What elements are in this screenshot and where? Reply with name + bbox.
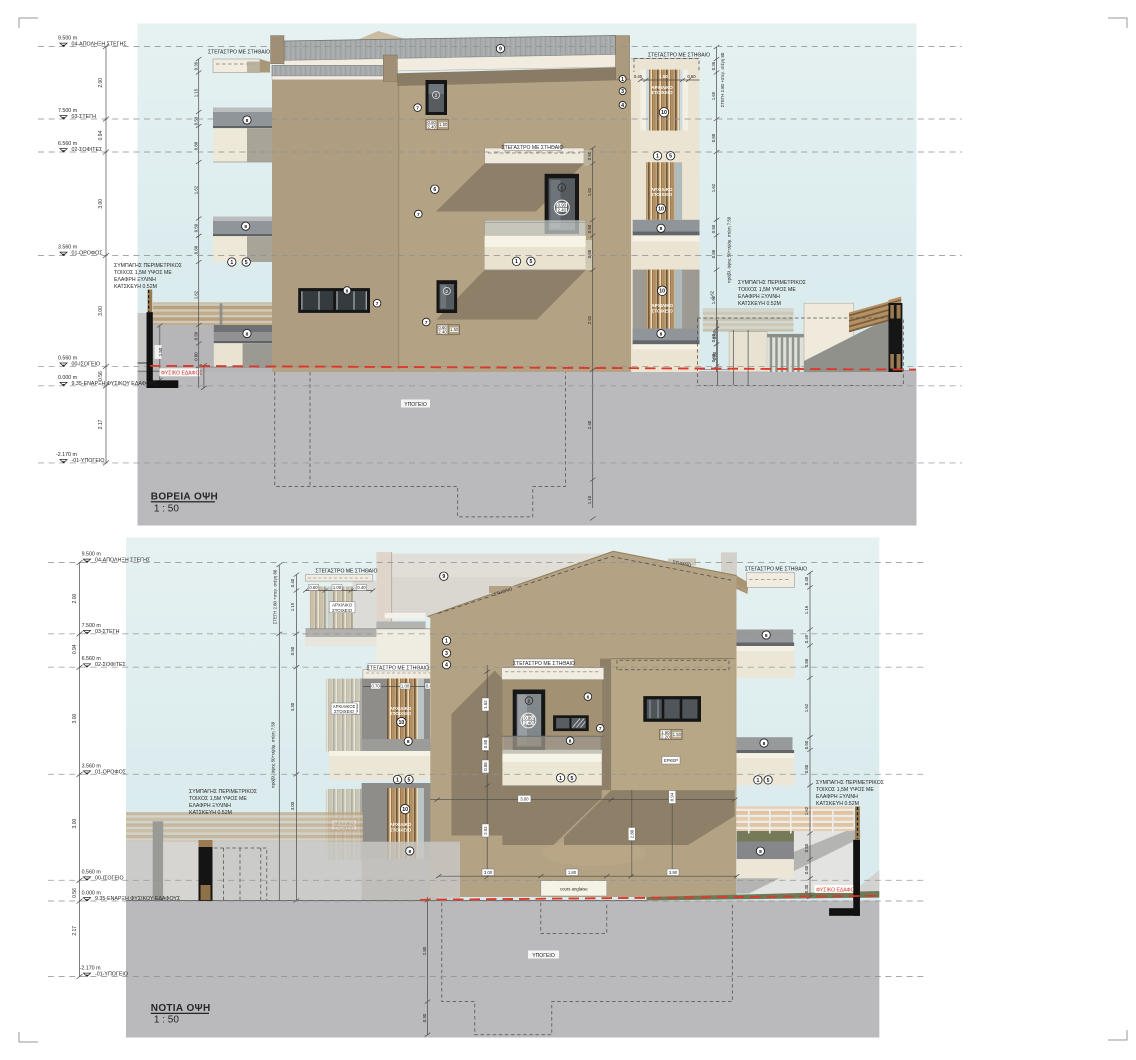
svg-text:1.19: 1.19: [290, 602, 295, 611]
svg-text:1 : 50: 1 : 50: [154, 1015, 179, 1026]
svg-text:01-ΟΡΟΦΟΣ: 01-ΟΡΟΦΟΣ: [95, 769, 127, 775]
svg-text:1: 1: [756, 778, 759, 784]
svg-text:3.00: 3.00: [72, 819, 78, 829]
svg-text:ΣΤΟΙΧΕΙΟ: ΣΤΟΙΧΕΙΟ: [652, 308, 674, 313]
svg-text:ΣΤΕΓΑΣΤΡΟ ΜΕ ΣΤΗΘΑΙΟ: ΣΤΕΓΑΣΤΡΟ ΜΕ ΣΤΗΘΑΙΟ: [501, 145, 563, 151]
svg-text:7: 7: [417, 212, 420, 218]
svg-text:-01-ΥΠΟΓΕΙΟ: -01-ΥΠΟΓΕΙΟ: [95, 972, 128, 978]
svg-text:5: 5: [669, 154, 672, 160]
svg-text:01-ΟΡΟΦΟΣ: 01-ΟΡΟΦΟΣ: [72, 251, 104, 257]
svg-text:ΤΟΙΧΟΣ 1,5Μ ΥΨΟΣ ΜΕ: ΤΟΙΧΟΣ 1,5Μ ΥΨΟΣ ΜΕ: [189, 796, 247, 802]
svg-text:1.50: 1.50: [439, 122, 448, 127]
svg-text:3.00: 3.00: [98, 199, 104, 209]
svg-text:ΝΟΤΙΑ ΟΨΗ: ΝΟΤΙΑ ΟΨΗ: [151, 1003, 211, 1014]
svg-text:0.88: 0.88: [804, 764, 809, 773]
svg-text:0.40: 0.40: [634, 74, 643, 79]
svg-text:3: 3: [621, 89, 624, 95]
svg-text:ΣΤΕΓΑΣΤΡΟ ΜΕ ΣΤΗΘΑΙΟ: ΣΤΕΓΑΣΤΡΟ ΜΕ ΣΤΗΘΑΙΟ: [513, 661, 575, 667]
svg-text:8: 8: [346, 288, 349, 294]
svg-text:1.50: 1.50: [659, 74, 668, 79]
svg-text:0.40: 0.40: [290, 578, 295, 587]
svg-text:3.00: 3.00: [484, 870, 493, 875]
svg-text:1.62: 1.62: [804, 703, 809, 712]
svg-text:6: 6: [587, 694, 590, 700]
svg-text:ΚΑΤΣΚΕΥΗ 0.52Μ: ΚΑΤΣΚΕΥΗ 0.52Μ: [114, 284, 157, 290]
svg-text:0.88: 0.88: [587, 249, 592, 258]
svg-text:2.80: 2.80: [422, 946, 427, 955]
svg-text:8: 8: [407, 739, 410, 745]
svg-text:0.88: 0.88: [711, 133, 716, 142]
svg-text:9.35-ΕΝΑΡΞΗ ΦΥΣΙΚΟΥ ΕΔΑΦΟΥΣ: 9.35-ΕΝΑΡΞΗ ΦΥΣΙΚΟΥ ΕΔΑΦΟΥΣ: [95, 896, 181, 902]
svg-text:0.60: 0.60: [804, 865, 809, 874]
svg-text:5: 5: [767, 778, 770, 784]
svg-text:1.16: 1.16: [804, 605, 809, 614]
svg-text:00-ΙΣΟΓΕΙΟ: 00-ΙΣΟΓΕΙΟ: [95, 875, 124, 881]
svg-text:ΑΡΧΙΛΙΚΟ: ΑΡΧΙΛΙΚΟ: [651, 187, 673, 192]
svg-text:1: 1: [230, 260, 233, 266]
svg-text:πρόβλ. όψης 50+υψόμ. στέγη 7.5: πρόβλ. όψης 50+υψόμ. στέγη 7.50: [271, 721, 276, 788]
svg-text:ΤΟΙΧΟΣ 1,5Μ ΥΨΟΣ ΜΕ: ΤΟΙΧΟΣ 1,5Μ ΥΨΟΣ ΜΕ: [816, 787, 874, 793]
svg-text:3.00: 3.00: [520, 797, 529, 802]
svg-text:ΤΟΙΧΟΣ 1,5Μ ΥΨΟΣ ΜΕ: ΤΟΙΧΟΣ 1,5Μ ΥΨΟΣ ΜΕ: [738, 287, 796, 293]
svg-text:1.15: 1.15: [194, 88, 199, 97]
svg-text:4: 4: [445, 663, 448, 669]
svg-text:1.62: 1.62: [711, 295, 716, 304]
svg-text:ΒΟΡΕΙΑ ΟΨΗ: ΒΟΡΕΙΑ ΟΨΗ: [151, 492, 218, 503]
svg-text:1: 1: [445, 639, 448, 645]
svg-text:1.62: 1.62: [711, 183, 716, 192]
svg-text:1.62: 1.62: [194, 185, 199, 194]
svg-text:ΣΥΜΠΑΓΗΣ ΠΕΡΙΜΕΤΡΙΚΟΣ: ΣΥΜΠΑΓΗΣ ΠΕΡΙΜΕΤΡΙΚΟΣ: [738, 280, 806, 286]
svg-text:2.40: 2.40: [438, 330, 447, 335]
svg-text:0.40: 0.40: [357, 585, 366, 590]
svg-text:2.17: 2.17: [98, 419, 104, 429]
svg-text:ΣΤΕΓΗ 2.80 +στεγ. στέγη 80: ΣΤΕΓΗ 2.80 +στεγ. στέγη 80: [273, 569, 278, 624]
svg-text:ΥΠΟΓΕΙΟ: ΥΠΟΓΕΙΟ: [404, 402, 427, 408]
svg-text:10: 10: [399, 720, 405, 726]
svg-text:1.50: 1.50: [158, 347, 163, 356]
svg-text:1 : 50: 1 : 50: [154, 504, 179, 515]
svg-text:0.50: 0.50: [587, 224, 592, 233]
svg-text:ΣΤΟΙΧΕΙΟ: ΣΤΟΙΧΕΙΟ: [334, 709, 355, 714]
svg-text:3.30: 3.30: [290, 702, 295, 711]
svg-text:1.62: 1.62: [804, 806, 809, 815]
svg-text:ΑΡΧΙΛΙΚΟ: ΑΡΧΙΛΙΚΟ: [651, 85, 673, 90]
svg-text:ΣΤΕΓΑΣΤΡΟ ΜΕ ΣΤΗΘΑΙΟ: ΣΤΕΓΑΣΤΡΟ ΜΕ ΣΤΗΘΑΙΟ: [648, 53, 710, 59]
svg-text:ΣΤΟΙΧΕΙΟ: ΣΤΟΙΧΕΙΟ: [651, 90, 673, 95]
svg-text:1.00: 1.00: [333, 585, 342, 590]
svg-text:1.00: 1.00: [401, 684, 410, 689]
svg-text:ΣΤΕΓΑΣΤΡΟ ΜΕ ΣΤΗΘΑΙΟ: ΣΤΕΓΑΣΤΡΟ ΜΕ ΣΤΗΘΑΙΟ: [208, 50, 270, 56]
svg-text:0.50: 0.50: [587, 151, 592, 160]
svg-text:1.80: 1.80: [568, 870, 577, 875]
svg-text:5: 5: [408, 777, 411, 783]
svg-text:ΑΡΧΙΛΙΚΟ: ΑΡΧΙΛΙΚΟ: [390, 822, 412, 827]
svg-text:0.56: 0.56: [72, 888, 78, 898]
svg-text:5: 5: [571, 776, 574, 782]
svg-text:1: 1: [621, 77, 624, 83]
svg-text:0.36: 0.36: [194, 61, 199, 70]
svg-text:6: 6: [433, 187, 436, 193]
svg-text:10: 10: [402, 807, 408, 813]
svg-text:1.50: 1.50: [450, 327, 459, 332]
svg-text:0.88: 0.88: [711, 249, 716, 258]
svg-text:0.88: 0.88: [483, 762, 488, 771]
svg-text:2.40: 2.40: [558, 208, 567, 213]
svg-text:0.94: 0.94: [98, 130, 104, 140]
svg-text:4: 4: [621, 103, 624, 109]
svg-text:1.62: 1.62: [194, 290, 199, 299]
svg-text:ΣΤΕΓΗ 2.80 +στεγ. στέγη 80: ΣΤΕΓΗ 2.80 +στεγ. στέγη 80: [720, 52, 725, 107]
svg-text:3: 3: [445, 651, 448, 657]
svg-text:10: 10: [659, 289, 665, 295]
svg-text:ΣΤΕΓΑΣΤΡΟ ΜΕ ΣΤΗΘΑΙΟ: ΣΤΕΓΑΣΤΡΟ ΜΕ ΣΤΗΘΑΙΟ: [315, 569, 377, 575]
svg-text:1: 1: [656, 154, 659, 160]
svg-text:1.62: 1.62: [483, 700, 488, 709]
svg-text:0.50: 0.50: [194, 331, 199, 340]
svg-text:03-ΣΤΕΓΗ: 03-ΣΤΕΓΗ: [72, 114, 97, 120]
svg-text:8: 8: [246, 331, 249, 337]
svg-text:0.88: 0.88: [194, 141, 199, 150]
svg-text:2.00: 2.00: [98, 78, 104, 88]
svg-text:0.60: 0.60: [687, 74, 696, 79]
svg-text:0.88: 0.88: [194, 245, 199, 254]
svg-text:ΚΑΤΣΚΕΥΗ 0.52Μ: ΚΑΤΣΚΕΥΗ 0.52Μ: [816, 801, 859, 807]
svg-text:02-ΣΟΦΙΤΕΣ: 02-ΣΟΦΙΤΕΣ: [72, 147, 104, 153]
svg-text:2.17: 2.17: [72, 926, 78, 936]
svg-text:04-ΑΠΟΛΗΞΗ ΣΤΕΓΗΣ: 04-ΑΠΟΛΗΞΗ ΣΤΕΓΗΣ: [72, 41, 128, 47]
svg-text:0.50: 0.50: [483, 739, 488, 748]
svg-text:1: 1: [515, 259, 518, 265]
svg-text:0.49: 0.49: [804, 634, 809, 643]
svg-text:2.40: 2.40: [524, 721, 533, 726]
svg-text:0.30: 0.30: [804, 884, 809, 893]
svg-text:8: 8: [765, 633, 768, 639]
svg-text:8: 8: [244, 224, 247, 230]
svg-text:2: 2: [445, 289, 448, 295]
svg-text:ΦΥΣΙΚΟ ΕΔΑΦΟΣ: ΦΥΣΙΚΟ ΕΔΑΦΟΣ: [161, 371, 203, 377]
svg-text:0.50: 0.50: [804, 843, 809, 852]
svg-text:0.50: 0.50: [194, 116, 199, 125]
svg-text:0.40: 0.40: [804, 576, 809, 585]
svg-text:0.50: 0.50: [804, 740, 809, 749]
svg-text:0.80: 0.80: [194, 352, 199, 361]
svg-text:3.00: 3.00: [72, 714, 78, 724]
svg-text:9: 9: [499, 47, 502, 53]
svg-text:0.56: 0.56: [98, 371, 104, 381]
svg-text:cours anglaise: cours anglaise: [560, 887, 588, 892]
svg-text:ΚΑΤΣΚΕΥΗ 0.52Μ: ΚΑΤΣΚΕΥΗ 0.52Μ: [189, 810, 232, 816]
svg-text:ΕΛΑΦΡΗ ΞΥΛΙΝΗ: ΕΛΑΦΡΗ ΞΥΛΙΝΗ: [114, 277, 156, 283]
svg-text:8: 8: [408, 849, 411, 855]
svg-text:ΚΑΤΣΚΕΥΗ 0.52Μ: ΚΑΤΣΚΕΥΗ 0.52Μ: [738, 301, 781, 307]
svg-text:0.36: 0.36: [711, 61, 716, 70]
svg-text:ΣΤΕΓΑΣΤΡΟ ΜΕ ΣΤΗΘΑΙΟ: ΣΤΕΓΑΣΤΡΟ ΜΕ ΣΤΗΘΑΙΟ: [745, 566, 807, 572]
svg-text:ΥΠΟΓΕΙΟ: ΥΠΟΓΕΙΟ: [532, 953, 555, 959]
svg-text:9.35-ΕΝΑΡΞΗ ΦΥΣΙΚΟΥ ΕΔΑΦΟΥΣ: 9.35-ΕΝΑΡΞΗ ΦΥΣΙΚΟΥ ΕΔΑΦΟΥΣ: [72, 381, 158, 387]
svg-text:2.20: 2.20: [661, 734, 670, 739]
svg-text:7: 7: [376, 301, 379, 307]
svg-text:3.90: 3.90: [669, 870, 678, 875]
svg-text:04-ΑΠΟΛΗΞΗ ΣΤΕΓΗΣ: 04-ΑΠΟΛΗΞΗ ΣΤΕΓΗΣ: [95, 558, 151, 564]
svg-text:02-ΣΟΦΙΤΕΣ: 02-ΣΟΦΙΤΕΣ: [95, 662, 127, 668]
svg-text:1.62: 1.62: [587, 187, 592, 196]
svg-text:10: 10: [658, 207, 664, 213]
svg-text:9: 9: [442, 574, 445, 580]
svg-text:0.94: 0.94: [72, 644, 78, 654]
svg-text:3.00: 3.00: [98, 306, 104, 316]
svg-text:1.69: 1.69: [711, 91, 716, 100]
svg-text:0.50: 0.50: [711, 333, 716, 342]
svg-text:7: 7: [416, 105, 419, 111]
svg-text:1: 1: [396, 777, 399, 783]
svg-text:7: 7: [599, 726, 602, 732]
svg-text:0.30: 0.30: [422, 1013, 427, 1022]
svg-text:5: 5: [245, 260, 248, 266]
svg-text:ΣΤΟΙΧΕΙΟ: ΣΤΟΙΧΕΙΟ: [651, 192, 673, 197]
svg-text:2: 2: [560, 185, 563, 191]
svg-text:8: 8: [759, 849, 762, 855]
svg-text:0.60: 0.60: [309, 585, 318, 590]
svg-text:0.50: 0.50: [290, 646, 295, 655]
svg-text:ΑΡΧΙΛΙΚΟ: ΑΡΧΙΛΙΚΟ: [390, 706, 412, 711]
svg-text:2.40: 2.40: [428, 125, 437, 130]
svg-text:ΣΥΜΠΑΓΗΣ ΠΕΡΙΜΕΤΡΙΚΟΣ: ΣΥΜΠΑΓΗΣ ΠΕΡΙΜΕΤΡΙΚΟΣ: [189, 789, 257, 795]
svg-text:00-ΙΣΟΓΕΙΟ: 00-ΙΣΟΓΕΙΟ: [72, 361, 101, 367]
svg-text:8: 8: [569, 738, 572, 744]
svg-text:1.10: 1.10: [587, 495, 592, 504]
svg-text:2: 2: [435, 93, 438, 99]
svg-text:0.50: 0.50: [194, 223, 199, 232]
svg-text:ΤΟΙΧΟΣ 1,5Μ ΥΨΟΣ ΜΕ: ΤΟΙΧΟΣ 1,5Μ ΥΨΟΣ ΜΕ: [114, 270, 172, 276]
svg-text:-01-ΥΠΟΓΕΙΟ: -01-ΥΠΟΓΕΙΟ: [72, 458, 105, 464]
svg-text:ΣΤΟΙΧΕΙΟ: ΣΤΟΙΧΕΙΟ: [390, 828, 412, 833]
svg-text:1.50: 1.50: [673, 732, 682, 737]
svg-text:ΕΛΑΦΡΗ ΞΥΛΙΝΗ: ΕΛΑΦΡΗ ΞΥΛΙΝΗ: [738, 294, 780, 300]
svg-text:8: 8: [660, 331, 663, 337]
svg-text:8: 8: [246, 118, 249, 124]
svg-text:ΣΥΜΠΑΓΗΣ ΠΕΡΙΜΕΤΡΙΚΟΣ: ΣΥΜΠΑΓΗΣ ΠΕΡΙΜΕΤΡΙΚΟΣ: [816, 780, 884, 786]
svg-text:0.60: 0.60: [711, 353, 716, 362]
svg-text:πρόβλ. όψης 50+υψόμ. στέγη 7.5: πρόβλ. όψης 50+υψόμ. στέγη 7.50: [727, 216, 732, 283]
svg-text:ΑΡΧΙΛΙΚΟ: ΑΡΧΙΛΙΚΟ: [651, 303, 673, 308]
svg-text:8: 8: [763, 741, 766, 747]
svg-text:2.00: 2.00: [72, 594, 78, 604]
svg-text:2: 2: [528, 699, 531, 705]
svg-text:7: 7: [425, 320, 428, 326]
svg-text:5: 5: [529, 259, 532, 265]
svg-text:3.00: 3.00: [290, 801, 295, 810]
svg-text:ΣΤΟΙΧΕΙΟ: ΣΤΟΙΧΕΙΟ: [332, 608, 353, 613]
svg-text:2.40: 2.40: [587, 420, 592, 429]
svg-text:8: 8: [660, 226, 663, 232]
svg-text:ΣΥΜΠΑΓΗΣ ΠΕΡΙΜΕΤΡΙΚΟΣ: ΣΥΜΠΑΓΗΣ ΠΕΡΙΜΕΤΡΙΚΟΣ: [114, 263, 182, 269]
svg-text:ΕΛΑΦΡΗ ΞΥΛΙΝΗ: ΕΛΑΦΡΗ ΞΥΛΙΝΗ: [816, 794, 858, 800]
svg-text:ΦΥΣΙΚΟ ΕΔΑΦΟΣ: ΦΥΣΙΚΟ ΕΔΑΦΟΣ: [816, 887, 858, 893]
svg-text:ΕΛΑΦΡΗ ΞΥΛΙΝΗ: ΕΛΑΦΡΗ ΞΥΛΙΝΗ: [189, 803, 231, 809]
svg-text:1: 1: [559, 776, 562, 782]
svg-text:2.80: 2.80: [629, 829, 634, 838]
svg-text:ΣΤΟΙΧΕΙΟ: ΣΤΟΙΧΕΙΟ: [390, 711, 412, 716]
svg-text:0.50: 0.50: [711, 224, 716, 233]
svg-text:0.94: 0.94: [670, 792, 675, 801]
svg-text:ΕΡΚΕΡ: ΕΡΚΕΡ: [664, 758, 678, 763]
svg-text:0.88: 0.88: [804, 658, 809, 667]
svg-text:2.92: 2.92: [587, 315, 592, 324]
svg-text:10: 10: [661, 110, 667, 116]
svg-text:ΣΤΕΓΑΣΤΡΟ ΜΕ ΣΤΗΘΑΙΟ: ΣΤΕΓΑΣΤΡΟ ΜΕ ΣΤΗΘΑΙΟ: [367, 665, 429, 671]
svg-text:0.70: 0.70: [371, 684, 380, 689]
svg-text:2.92: 2.92: [483, 826, 488, 835]
svg-text:03-ΣΤΕΓΗ: 03-ΣΤΕΓΗ: [95, 629, 120, 635]
